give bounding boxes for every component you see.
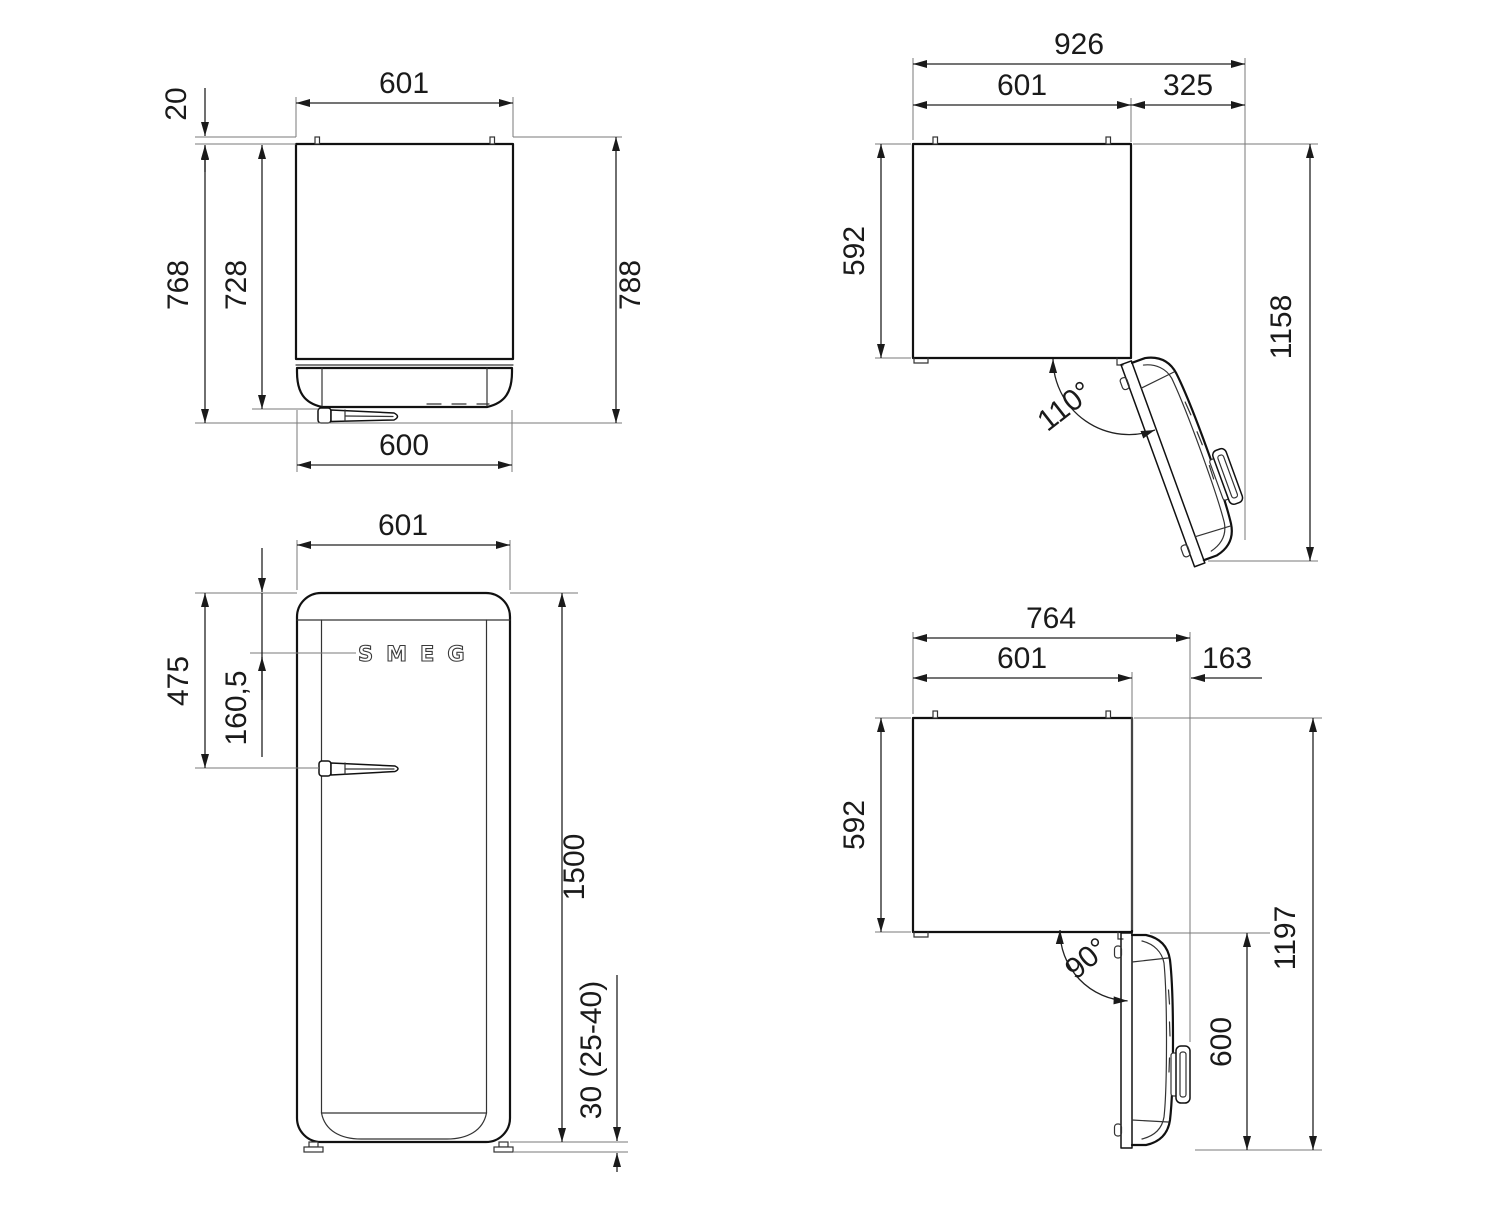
dim-cabinet-width-110: 601 (997, 69, 1047, 102)
wall-spacer-pin (1106, 137, 1111, 144)
dimensions-top-90: 764 601 163 592 1197 600 90° (838, 602, 1322, 1150)
dim-door-angle-90: 90° (1059, 931, 1115, 985)
dim-depth-body: 728 (220, 260, 253, 310)
dim-door-width: 600 (379, 429, 429, 462)
dim-door-clearance-90: 163 (1202, 642, 1252, 675)
dim-cabinet-depth-110: 592 (838, 226, 871, 276)
cabinet-front: SMEG (297, 593, 513, 1152)
technical-drawing: 601 600 20 768 728 788 (0, 0, 1500, 1200)
dim-door-angle-110: 110° (1031, 375, 1098, 438)
dim-feet-height: 30 (25-40) (575, 981, 608, 1119)
wall-spacer-pin (933, 137, 938, 144)
view-top-door-90: 764 601 163 592 1197 600 90° (838, 602, 1322, 1150)
dim-front-width: 601 (378, 509, 428, 542)
door-top-closed (297, 368, 512, 423)
wall-spacer-pin (1106, 711, 1111, 718)
cabinet-top-110 (913, 137, 1131, 365)
wall-spacer-pin (315, 137, 320, 144)
dim-wall-spacer: 20 (160, 87, 193, 120)
dim-handle-from-top: 475 (162, 656, 195, 706)
dim-height: 1500 (558, 834, 591, 901)
dim-depth-with-handle: 768 (162, 260, 195, 310)
dim-width-closed: 601 (379, 67, 429, 100)
view-top-closed: 601 600 20 768 728 788 (160, 67, 647, 472)
dim-total-depth-110: 1158 (1265, 295, 1298, 360)
wall-spacer-pin (933, 711, 938, 718)
adjustable-feet (304, 1142, 513, 1152)
dimensions-top-110: 926 601 325 592 1158 110° (838, 28, 1318, 561)
handle-top-closed (318, 408, 398, 423)
view-front: SMEG (162, 509, 628, 1172)
cabinet-top-90 (913, 711, 1132, 939)
dimension-drawing-page: 601 600 20 768 728 788 (0, 0, 1500, 1200)
dimensions-top-closed: 601 600 20 768 728 788 (160, 67, 647, 472)
dim-total-depth-90: 1197 (1269, 906, 1302, 971)
dim-depth-total: 788 (614, 260, 647, 310)
door-open-90 (1115, 933, 1191, 1148)
dim-logo-from-top: 160,5 (220, 670, 253, 745)
view-top-door-110: 926 601 325 592 1158 110° (838, 28, 1318, 569)
brand-logo: SMEG (358, 642, 478, 666)
wall-spacer-pin (490, 137, 495, 144)
dim-door-depth-90: 600 (1205, 1017, 1238, 1067)
dim-cabinet-depth-90: 592 (838, 800, 871, 850)
door-handle-front (319, 761, 398, 776)
door-open-110 (1115, 341, 1259, 569)
dim-cabinet-width-90: 601 (997, 642, 1047, 675)
dim-total-width-110: 926 (1054, 28, 1104, 61)
dim-door-clearance-110: 325 (1163, 69, 1213, 102)
cabinet-top-closed (296, 137, 513, 365)
dim-total-width-90: 764 (1026, 602, 1076, 635)
dimensions-front: 601 475 160,5 1500 30 (25-40) (162, 509, 628, 1172)
